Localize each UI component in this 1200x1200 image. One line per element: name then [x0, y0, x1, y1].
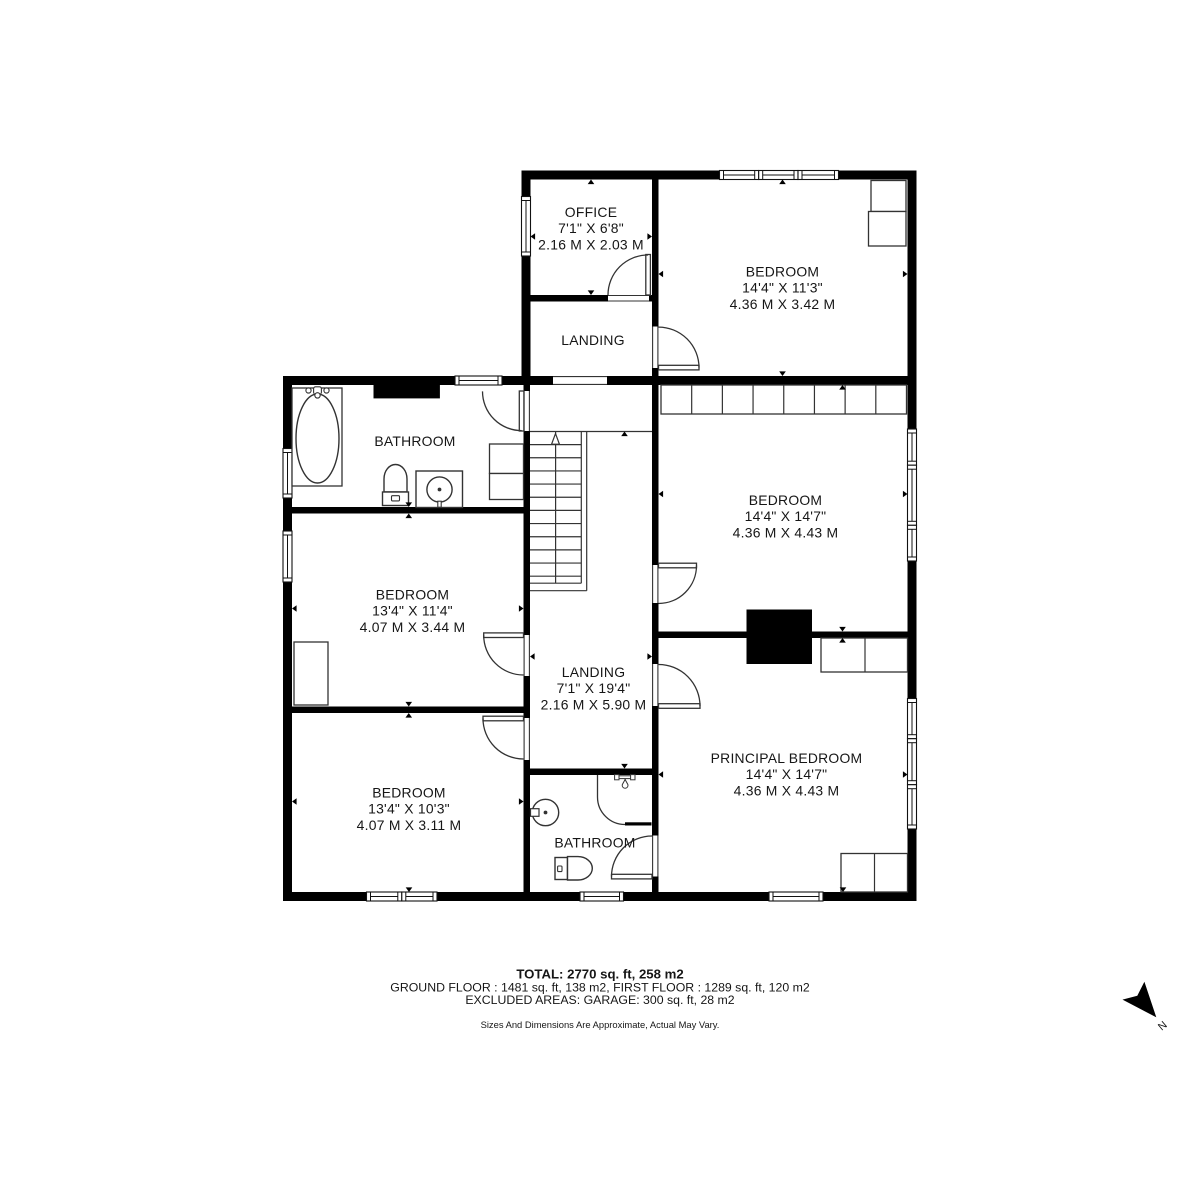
svg-text:7'1" X 19'4": 7'1" X 19'4" — [557, 680, 631, 696]
svg-text:13'4" X 10'3": 13'4" X 10'3" — [368, 801, 450, 817]
svg-text:BATHROOM: BATHROOM — [374, 433, 455, 449]
svg-text:4.36 M X 4.43 M: 4.36 M X 4.43 M — [734, 782, 840, 798]
svg-text:2.16 M X 5.90 M: 2.16 M X 5.90 M — [541, 696, 647, 712]
svg-text:BEDROOM: BEDROOM — [746, 264, 820, 280]
svg-text:4.07 M X 3.44 M: 4.07 M X 3.44 M — [360, 619, 466, 635]
svg-text:14'4" X 14'7": 14'4" X 14'7" — [746, 766, 828, 782]
svg-text:4.07 M X 3.11 M: 4.07 M X 3.11 M — [357, 817, 462, 833]
svg-text:4.36 M X 4.43 M: 4.36 M X 4.43 M — [733, 524, 839, 540]
svg-text:TOTAL: 2770 sq. ft, 258 m2: TOTAL: 2770 sq. ft, 258 m2 — [516, 966, 683, 981]
svg-text:BEDROOM: BEDROOM — [376, 587, 450, 603]
svg-text:EXCLUDED AREAS: GARAGE: 300 sq: EXCLUDED AREAS: GARAGE: 300 sq. ft, 28 m… — [465, 993, 734, 1007]
svg-text:BEDROOM: BEDROOM — [749, 492, 823, 508]
svg-text:14'4" X 14'7": 14'4" X 14'7" — [745, 508, 827, 524]
svg-text:OFFICE: OFFICE — [565, 204, 617, 220]
svg-text:BEDROOM: BEDROOM — [372, 785, 446, 801]
svg-text:PRINCIPAL BEDROOM: PRINCIPAL BEDROOM — [711, 750, 863, 766]
svg-text:BATHROOM: BATHROOM — [554, 835, 635, 851]
svg-text:LANDING: LANDING — [562, 664, 626, 680]
svg-text:LANDING: LANDING — [561, 332, 625, 348]
svg-text:14'4" X 11'3": 14'4" X 11'3" — [742, 280, 823, 296]
svg-text:Sizes And Dimensions Are Appro: Sizes And Dimensions Are Approximate, Ac… — [481, 1019, 720, 1030]
svg-text:2.16 M X 2.03 M: 2.16 M X 2.03 M — [538, 236, 644, 252]
svg-text:4.36 M X 3.42 M: 4.36 M X 3.42 M — [730, 296, 836, 312]
svg-text:13'4" X 11'4": 13'4" X 11'4" — [372, 603, 453, 619]
svg-text:7'1" X 6'8": 7'1" X 6'8" — [558, 220, 624, 236]
